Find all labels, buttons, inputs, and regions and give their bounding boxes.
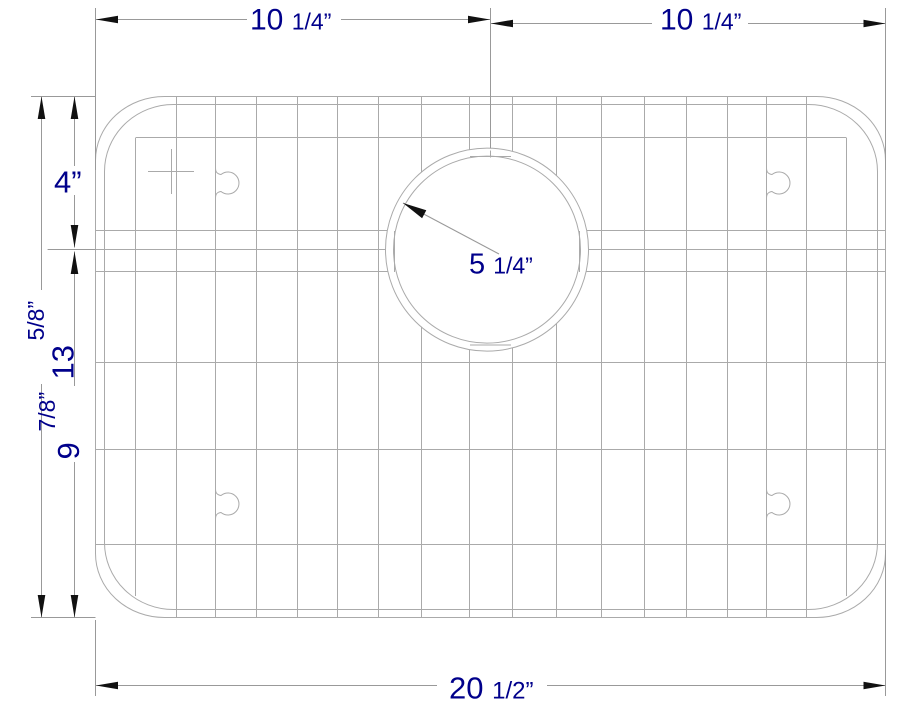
svg-text:7/8”: 7/8”	[34, 392, 60, 432]
svg-text:20 1/2”: 20 1/2”	[449, 670, 533, 705]
svg-text:9: 9	[51, 442, 86, 459]
svg-text:10 1/4”: 10 1/4”	[660, 4, 741, 37]
svg-text:10 1/4”: 10 1/4”	[250, 3, 331, 36]
svg-text:5 1/4”: 5 1/4”	[469, 249, 533, 281]
svg-text:4”: 4”	[54, 165, 82, 200]
svg-text:13: 13	[46, 345, 81, 379]
svg-text:5/8”: 5/8”	[23, 301, 49, 341]
